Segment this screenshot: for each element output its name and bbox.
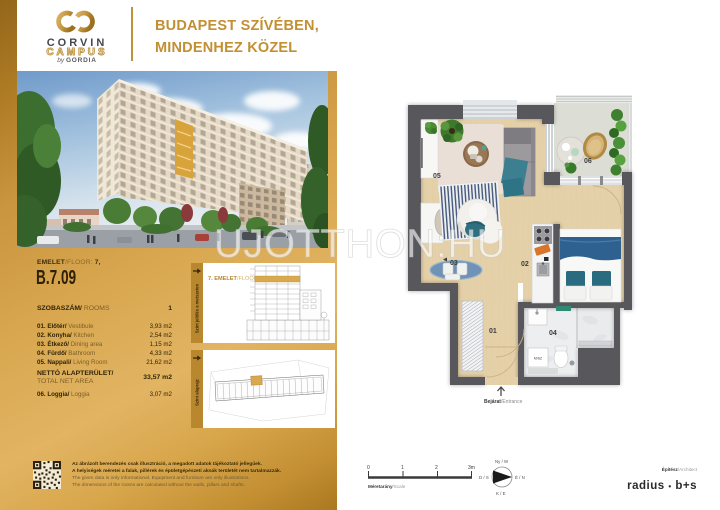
svg-text:1: 1 <box>401 465 404 471</box>
svg-text:Méretarány/Scale: Méretarány/Scale <box>368 484 406 489</box>
svg-text:3m: 3m <box>468 465 475 471</box>
svg-text:Építész/Architect: Építész/Architect <box>662 465 698 472</box>
svg-text:D / S: D / S <box>479 475 489 480</box>
svg-text:06: 06 <box>584 158 592 165</box>
svg-text:Ny / W: Ny / W <box>495 459 509 464</box>
svg-text:2: 2 <box>435 465 438 471</box>
svg-text:Bejárat/Entrance: Bejárat/Entrance <box>484 399 523 405</box>
svg-text:02: 02 <box>521 261 529 268</box>
svg-text:M/SZ: M/SZ <box>534 357 543 361</box>
svg-text:05: 05 <box>433 173 441 180</box>
svg-text:01: 01 <box>489 328 497 335</box>
svg-text:radius • b+s: radius • b+s <box>627 480 697 492</box>
svg-text:04: 04 <box>549 330 557 337</box>
svg-text:0: 0 <box>367 465 370 471</box>
svg-text:É / N: É / N <box>515 475 525 480</box>
svg-text:K / E: K / E <box>496 491 506 496</box>
